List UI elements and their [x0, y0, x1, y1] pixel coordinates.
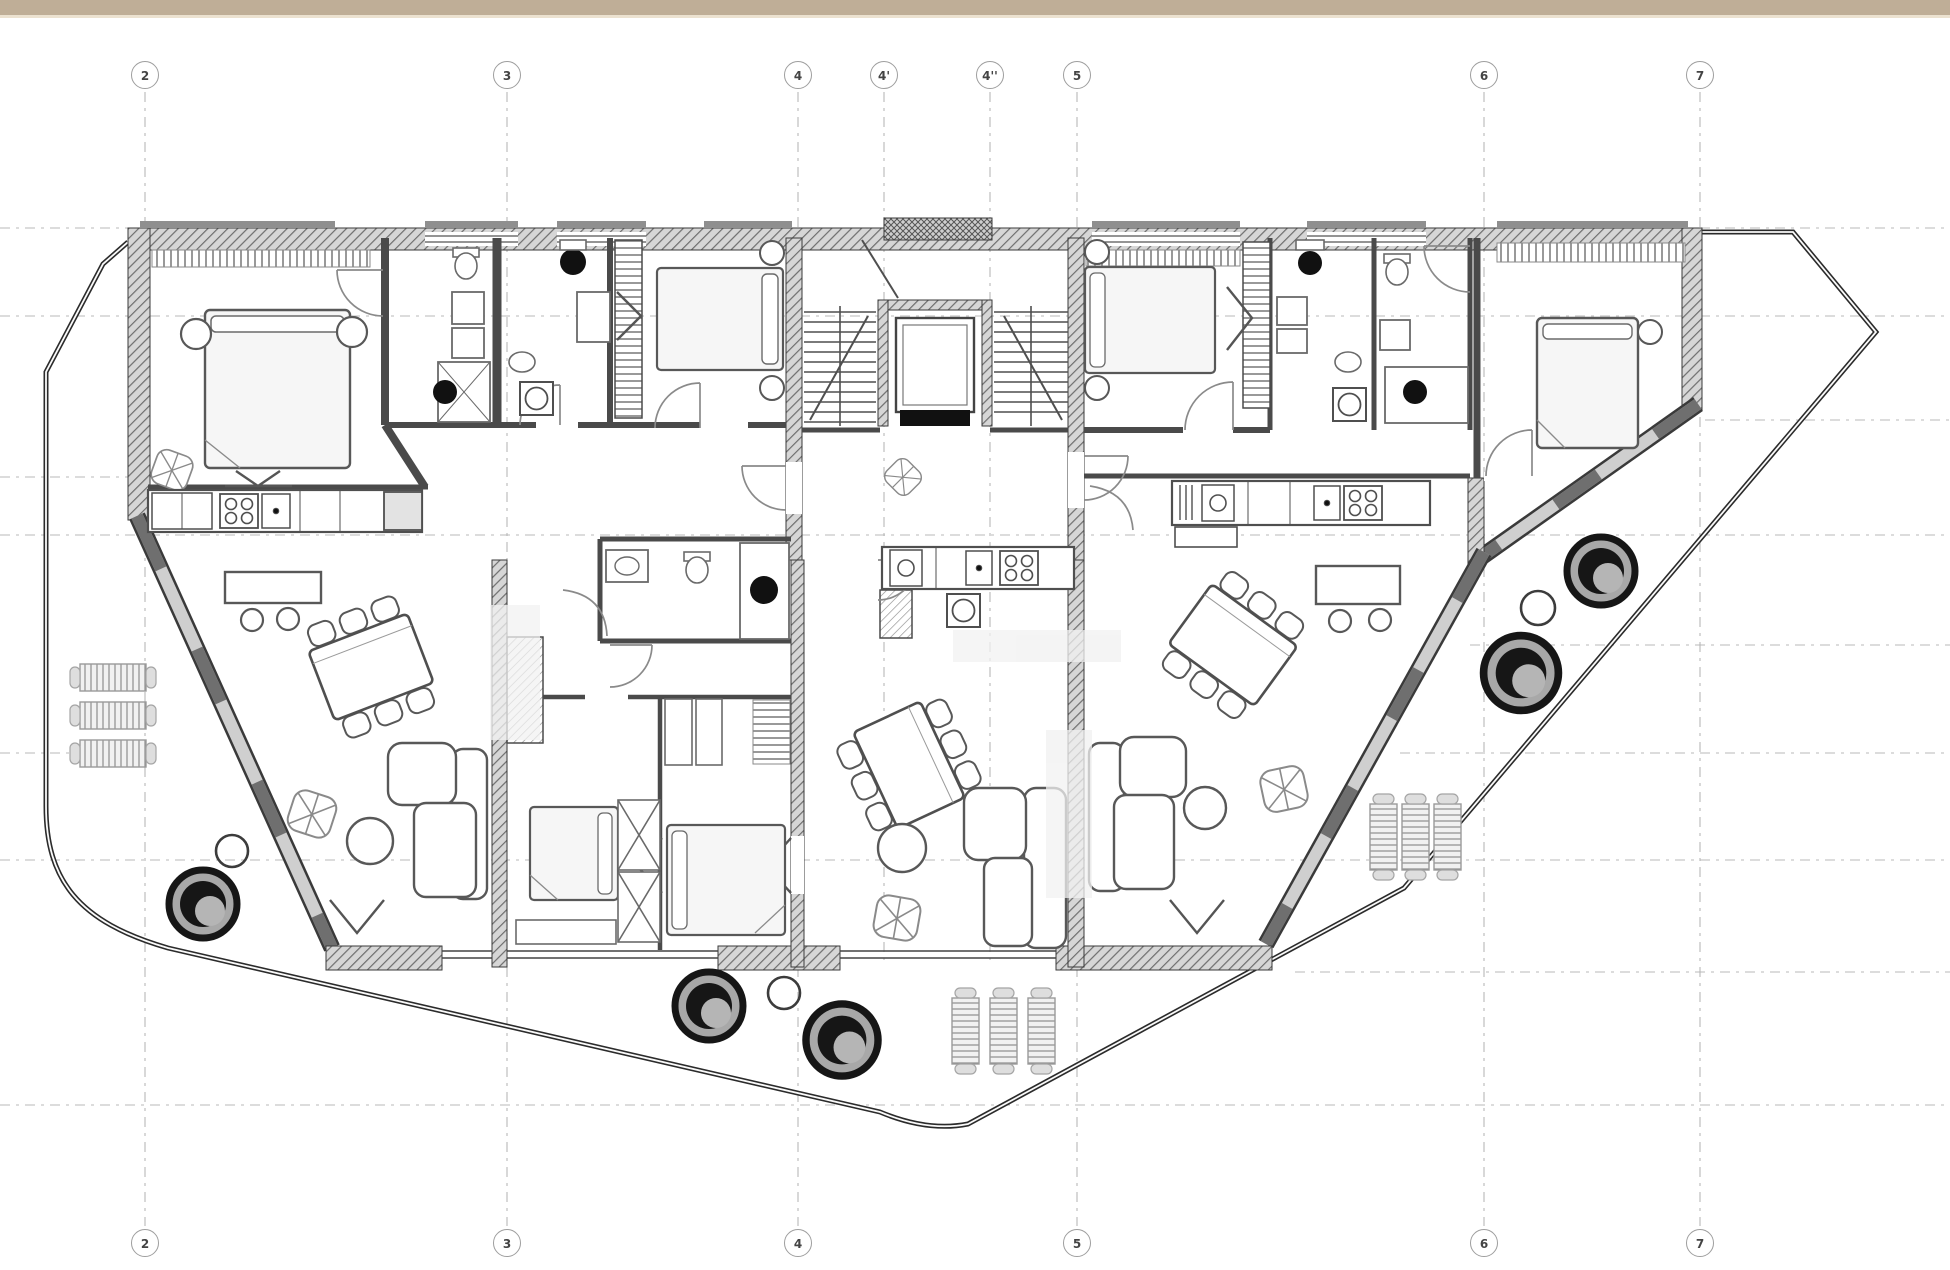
stair-core	[804, 240, 1068, 426]
bathroom	[606, 543, 789, 639]
side-table	[216, 835, 248, 867]
bed-bottom-1	[516, 807, 618, 944]
kitchen-island-right	[1316, 566, 1400, 632]
bathroom	[433, 248, 490, 422]
grid-bubble-bottom: 7	[1686, 1229, 1714, 1257]
bed-top-2	[657, 241, 784, 400]
coffee-table	[1184, 787, 1226, 829]
kitchen-right	[1172, 481, 1430, 547]
bathroom	[1277, 240, 1366, 421]
grid-bubble-top: 4'	[870, 61, 898, 89]
grid-bubble-top: 2	[131, 61, 159, 89]
side-table	[1521, 591, 1555, 625]
studio-furniture	[832, 455, 1074, 948]
left-apartment-furniture	[148, 240, 789, 944]
side-table	[768, 977, 800, 1009]
grid-bubble-bottom: 2	[131, 1229, 159, 1257]
sofa-left	[388, 743, 487, 899]
coffee-table	[347, 818, 393, 864]
grid-bubble-bottom: 5	[1063, 1229, 1091, 1257]
grid-bubble-top: 7	[1686, 61, 1714, 89]
grid-bubble-top: 5	[1063, 61, 1091, 89]
grid-bubble-top: 3	[493, 61, 521, 89]
grid-bubble-bottom: 4	[784, 1229, 812, 1257]
kitchen-left	[148, 490, 422, 532]
grid-bubble-top: 6	[1470, 61, 1498, 89]
bathroom	[1380, 254, 1468, 423]
bed-master-right	[1537, 318, 1662, 448]
floor-plan-page: 2 3 4 4' 4'' 5 6 7 2 3 4 5 6 7	[0, 0, 1950, 1270]
grid-bubble-top: 4	[784, 61, 812, 89]
bed-bottom-2	[667, 825, 785, 935]
grid-bubble-bottom: 6	[1470, 1229, 1498, 1257]
stair-window	[884, 218, 992, 240]
bed-master-left	[181, 310, 367, 468]
kitchen-studio	[882, 547, 1074, 589]
grid-bubble-top: 4''	[976, 61, 1004, 89]
coffee-table	[878, 824, 926, 872]
kitchen-island-left	[225, 572, 321, 631]
elevator	[878, 300, 992, 426]
grid-bubble-bottom: 3	[493, 1229, 521, 1257]
sofa-right	[1089, 737, 1186, 891]
floor-plan-drawing	[0, 0, 1950, 1270]
